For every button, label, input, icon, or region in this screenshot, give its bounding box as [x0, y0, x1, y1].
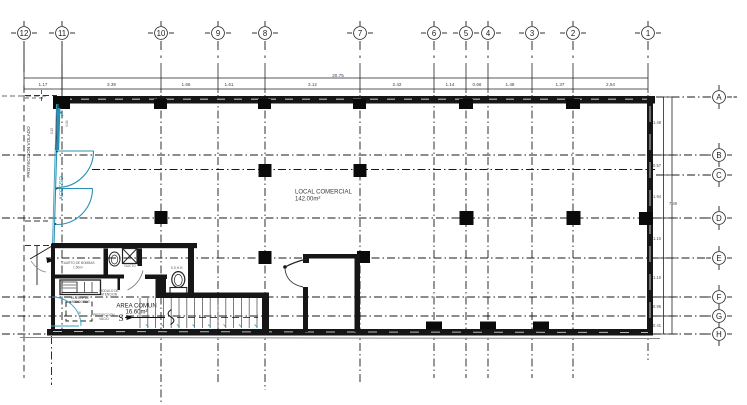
svg-text:S: S — [118, 314, 123, 324]
svg-text:3.39: 3.39 — [107, 82, 116, 87]
svg-text:G: G — [716, 312, 722, 321]
svg-text:6: 6 — [432, 29, 436, 38]
svg-text:2.54: 2.54 — [606, 82, 615, 87]
svg-text:3.12: 3.12 — [308, 82, 317, 87]
svg-text:142.00m²: 142.00m² — [295, 197, 320, 203]
svg-text:1.48: 1.48 — [653, 120, 662, 125]
svg-text:PROYECCION VOLADO: PROYECCION VOLADO — [26, 126, 31, 178]
svg-text:0.66: 0.66 — [473, 82, 482, 87]
svg-text:2: 2 — [571, 29, 575, 38]
svg-text:ACCESO: ACCESO — [59, 176, 65, 200]
svg-text:12: 12 — [20, 29, 29, 38]
svg-text:D: D — [716, 214, 722, 223]
svg-text:16.60m²: 16.60m² — [125, 310, 147, 316]
svg-text:C: C — [716, 171, 722, 180]
svg-text:1.66: 1.66 — [182, 82, 191, 87]
svg-text:20.75: 20.75 — [332, 73, 344, 78]
svg-text:1.10: 1.10 — [653, 236, 662, 241]
svg-text:1.10: 1.10 — [653, 275, 662, 280]
svg-text:A: A — [716, 93, 722, 102]
svg-text:CUARTO DE BOMBAS: CUARTO DE BOMBAS — [61, 261, 94, 265]
svg-text:0.41: 0.41 — [653, 323, 662, 328]
svg-text:1.48: 1.48 — [506, 82, 515, 87]
svg-text:1.94: 1.94 — [653, 194, 662, 199]
svg-text:0.15: 0.15 — [50, 128, 54, 134]
svg-text:11: 11 — [58, 29, 66, 38]
svg-text:H: H — [716, 330, 722, 339]
svg-text:7: 7 — [358, 29, 362, 38]
svg-text:LOCAL COMERCIAL: LOCAL COMERCIAL — [295, 190, 352, 196]
svg-text:0.57: 0.57 — [653, 163, 662, 168]
svg-text:3: 3 — [530, 29, 534, 38]
svg-text:5: 5 — [464, 29, 469, 38]
svg-text:DUCTO: DUCTO — [124, 264, 136, 268]
svg-text:1.50m²: 1.50m² — [73, 266, 83, 270]
svg-text:E: E — [716, 254, 721, 263]
svg-text:F: F — [717, 293, 722, 302]
svg-text:4: 4 — [486, 29, 491, 38]
svg-text:VACIO: VACIO — [99, 317, 109, 321]
svg-text:1.14: 1.14 — [446, 82, 455, 87]
svg-text:0.95: 0.95 — [653, 304, 662, 309]
svg-text:7.49: 7.49 — [669, 201, 678, 206]
svg-text:9: 9 — [216, 29, 220, 38]
svg-text:B: B — [716, 151, 721, 160]
svg-text:2.42: 2.42 — [393, 82, 402, 87]
svg-text:1.61: 1.61 — [225, 82, 234, 87]
svg-text:1: 1 — [646, 29, 650, 38]
svg-text:1.37: 1.37 — [556, 82, 565, 87]
svg-text:8: 8 — [263, 29, 267, 38]
svg-text:10: 10 — [157, 29, 166, 38]
svg-text:ATENCION: ATENCION — [101, 293, 118, 297]
svg-text:S.S.H.H.: S.S.H.H. — [171, 266, 184, 270]
svg-text:1.17: 1.17 — [39, 82, 48, 87]
svg-text:V-01: V-01 — [65, 120, 69, 127]
